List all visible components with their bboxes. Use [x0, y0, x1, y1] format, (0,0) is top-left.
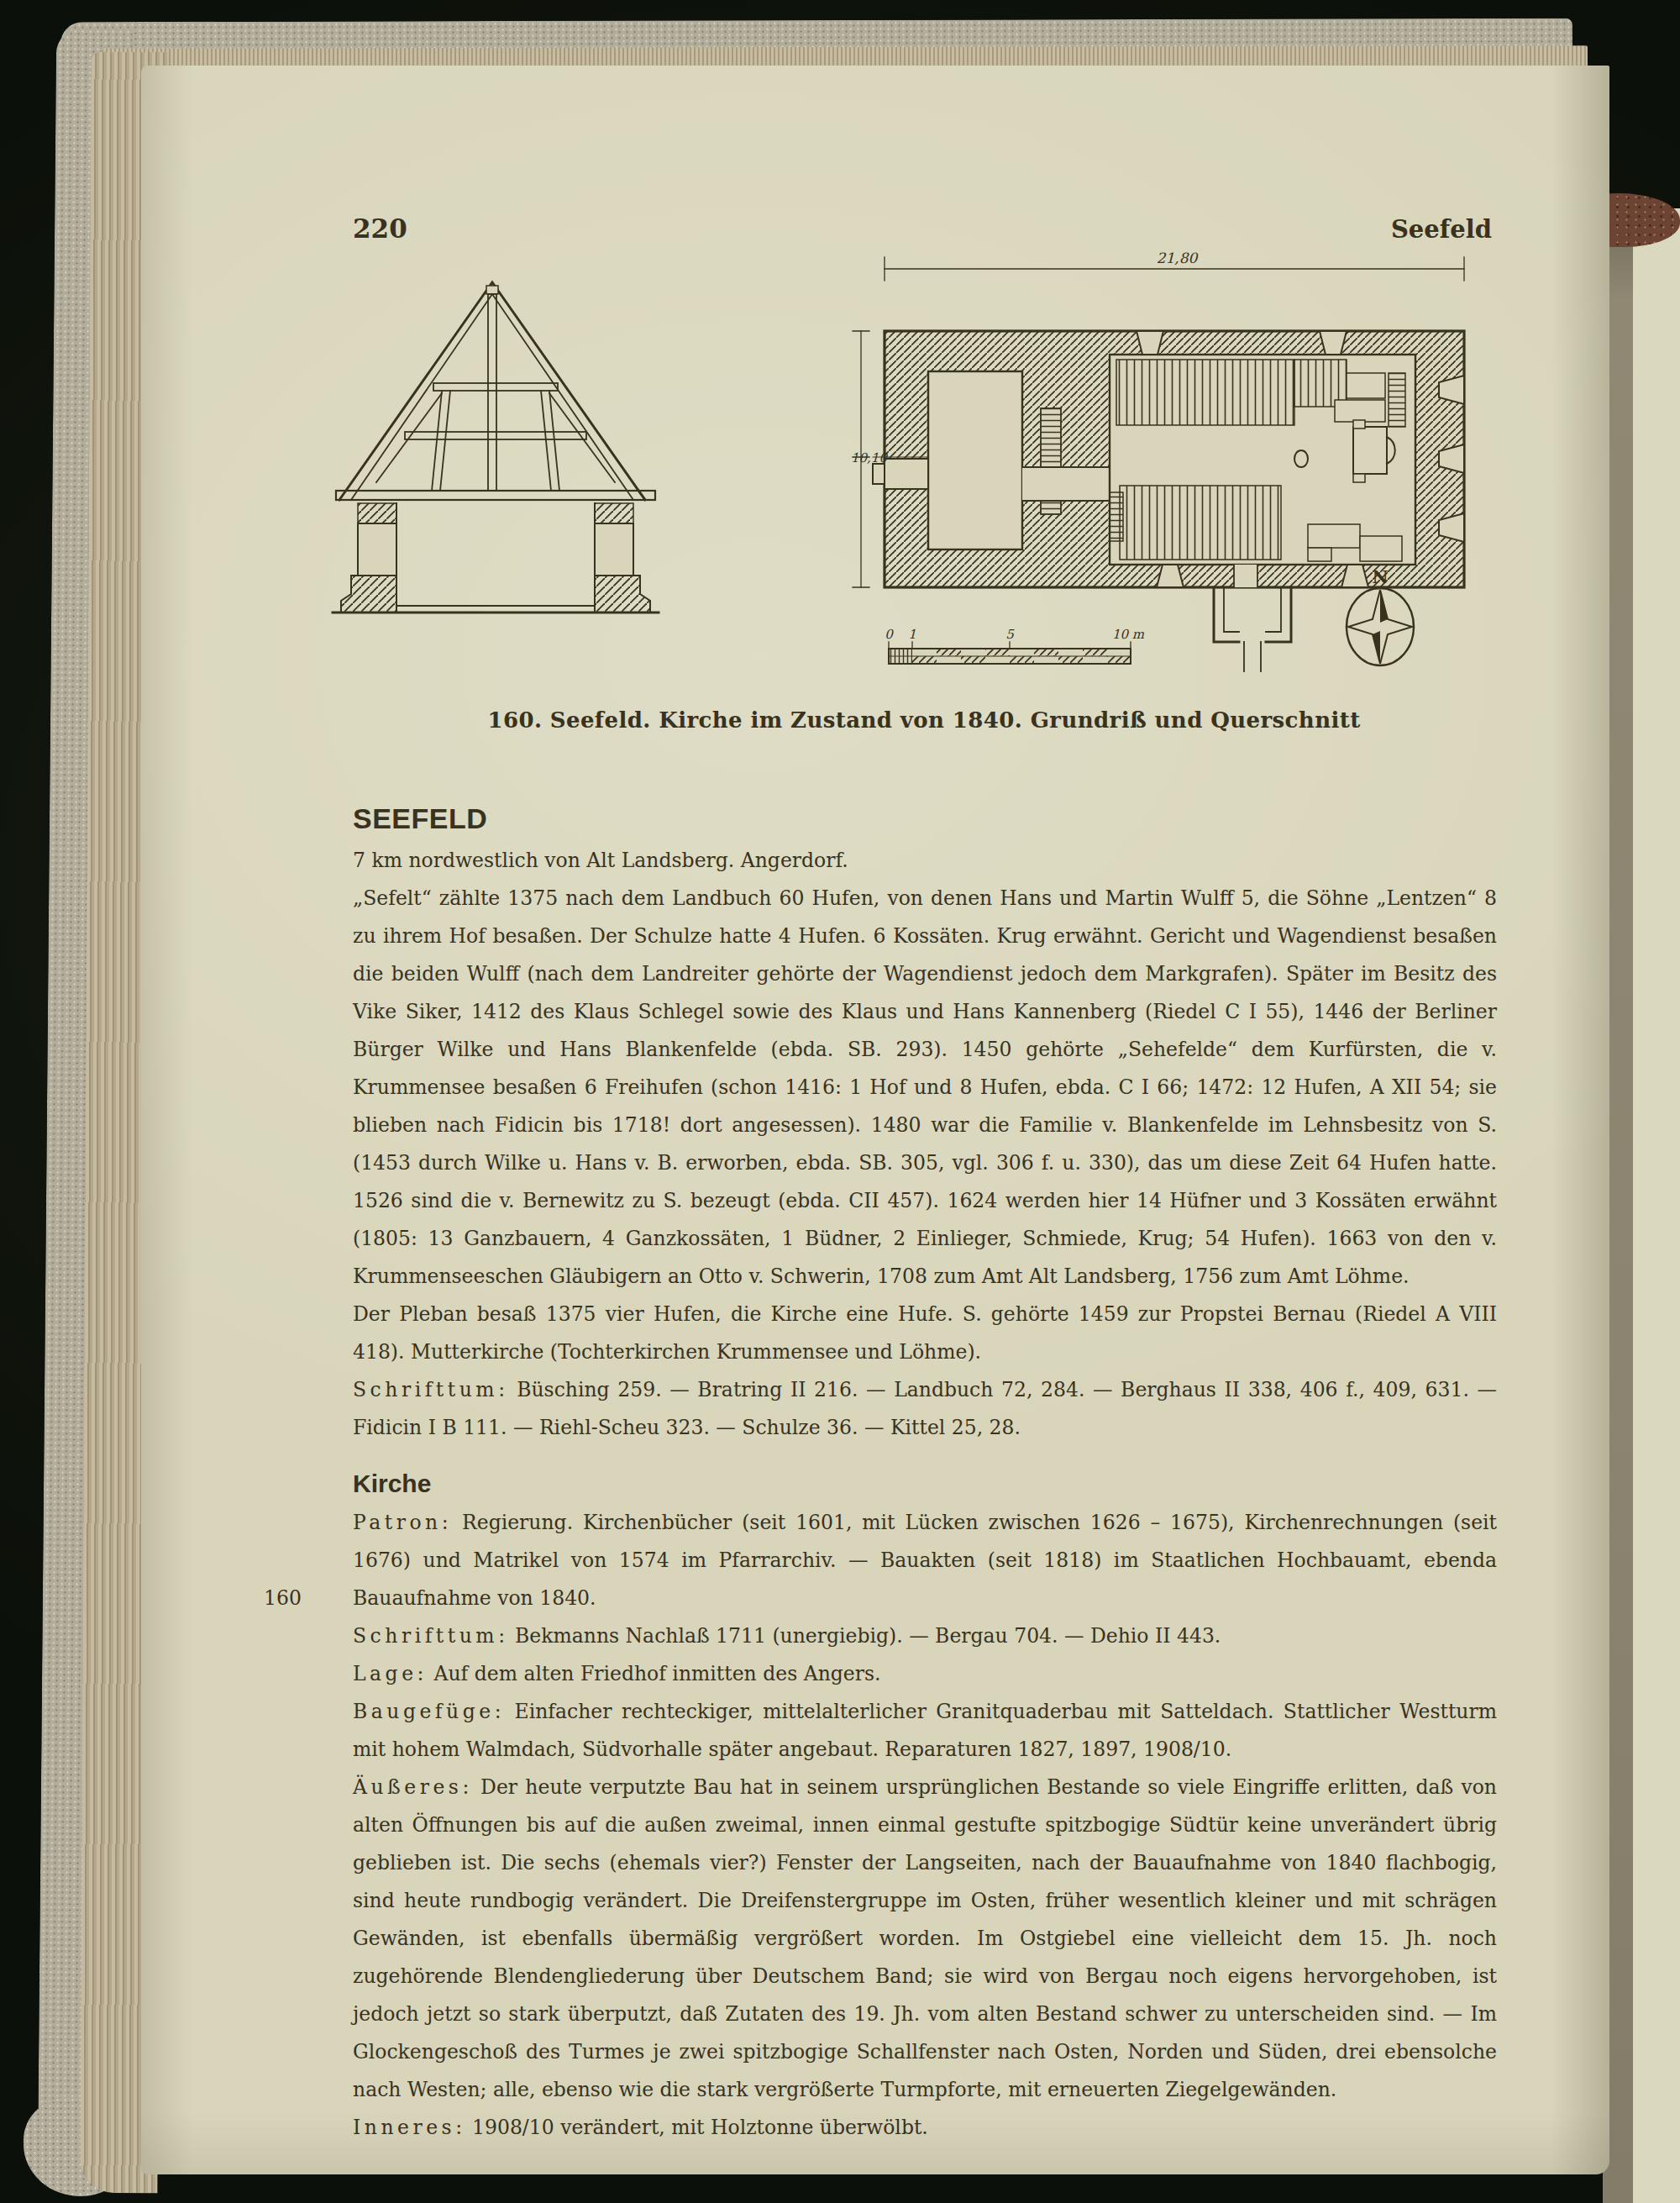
kirche-inneres: Inneres: 1908/10 verändert, mit Holztonn…: [353, 2109, 1497, 2147]
entry-text: SEEFELD 7 km nordwestlich von Alt Landsb…: [353, 802, 1497, 2147]
kirche-title: Kirche: [353, 1469, 1497, 1499]
schrifttum-label: Schrifttum:: [353, 1378, 509, 1401]
kirche-patron: Patron: Regierung. Kirchenbücher (seit 1…: [353, 1504, 1497, 1617]
figure-caption: 160. Seefeld. Kirche im Zustand von 1840…: [353, 707, 1495, 733]
schrifttum-text: Büsching 259. — Bratring II 216. — Landb…: [353, 1378, 1497, 1439]
kirche-schrifttum-label: Schrifttum:: [353, 1624, 509, 1648]
compass-north-label: N: [1372, 566, 1388, 587]
baugefuege-label: Baugefüge:: [353, 1700, 505, 1723]
patron-label: Patron:: [353, 1511, 452, 1534]
scale-label-5: 5: [1005, 627, 1015, 642]
running-head: 220 Seefeld: [353, 213, 1492, 244]
plan-height-dimension: 10,10: [851, 450, 888, 465]
next-page-edge: [1633, 208, 1680, 2203]
kirche-schrifttum: Schrifttum: Bekmanns Nachlaß 1711 (unerg…: [353, 1617, 1497, 1655]
floor-plan-drawing: 21,80 10,10 0 1 5 10 m N: [851, 247, 1515, 684]
kirche-baugefuege: Baugefüge: Einfacher rechteckiger, mitte…: [353, 1693, 1497, 1769]
scale-label-10m: 10 m: [1112, 627, 1145, 642]
kirche-aeusseres: Äußeres: Der heute verputzte Bau hat in …: [353, 1769, 1497, 2109]
running-title: Seefeld: [1391, 215, 1492, 244]
kirche-schrifttum-text: Bekmanns Nachlaß 1711 (unergiebig). — Be…: [509, 1624, 1221, 1648]
scale-label-0: 0: [885, 627, 894, 642]
entry-pleban: Der Pleban besaß 1375 vier Hufen, die Ki…: [353, 1296, 1497, 1371]
book-page: 220 Seefeld: [141, 66, 1609, 2174]
inneres-label: Inneres:: [353, 2116, 466, 2139]
plan-width-dimension: 21,80: [1157, 250, 1199, 266]
margin-figure-number: 160: [264, 1580, 302, 1617]
lage-label: Lage:: [353, 1662, 428, 1685]
aeusseres-label: Äußeres:: [353, 1775, 473, 1799]
patron-text: Regierung. Kirchenbücher (seit 1601, mit…: [353, 1511, 1497, 1610]
entry-title: SEEFELD: [353, 802, 1497, 835]
baugefuege-text: Einfacher rechteckiger, mittelalterliche…: [353, 1700, 1497, 1761]
scale-label-1: 1: [908, 627, 916, 642]
aeusseres-text: Der heute verputzte Bau hat in seinem ur…: [353, 1775, 1497, 2101]
page-number: 220: [353, 213, 407, 244]
inneres-text: 1908/10 verändert, mit Holztonne überwöl…: [466, 2116, 928, 2139]
entry-history: „Sefelt“ zählte 1375 nach dem Landbuch 6…: [353, 880, 1497, 1296]
entry-schrifttum: Schrifttum: Büsching 259. — Bratring II …: [353, 1371, 1497, 1447]
kirche-lage: Lage: Auf dem alten Friedhof inmitten de…: [353, 1655, 1497, 1693]
entry-intro: 7 km nordwestlich von Alt Landsberg. Ang…: [353, 842, 1497, 880]
lage-text: Auf dem alten Friedhof inmitten des Ange…: [428, 1662, 881, 1685]
cross-section-drawing: [328, 259, 664, 628]
